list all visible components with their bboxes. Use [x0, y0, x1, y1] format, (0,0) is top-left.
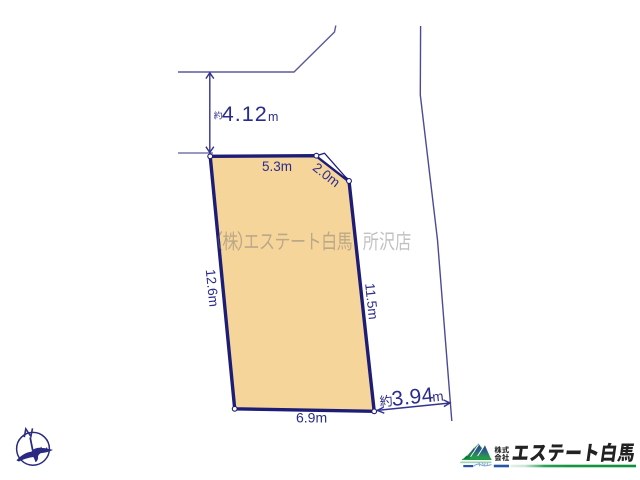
svg-text:3.94: 3.94	[390, 384, 434, 411]
svg-text:4.12: 4.12	[222, 101, 268, 126]
svg-text:m: m	[268, 110, 278, 124]
svg-text:m: m	[431, 388, 444, 404]
svg-text:5.3m: 5.3m	[262, 159, 292, 174]
svg-text:6.9m: 6.9m	[296, 409, 327, 425]
